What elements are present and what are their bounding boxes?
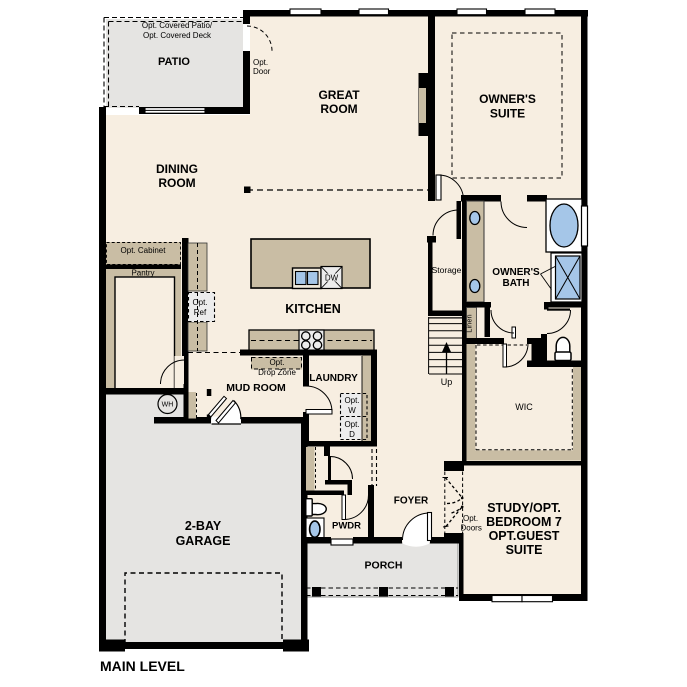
svg-text:GREAT: GREAT <box>318 88 360 102</box>
svg-text:Opt.: Opt. <box>269 358 284 367</box>
svg-text:Door: Door <box>253 67 271 76</box>
svg-text:PWDR: PWDR <box>332 521 361 532</box>
svg-text:MAIN LEVEL: MAIN LEVEL <box>100 658 185 674</box>
svg-text:DINING: DINING <box>156 162 198 176</box>
svg-text:Drop Zone: Drop Zone <box>258 368 296 377</box>
svg-text:ROOM: ROOM <box>158 176 195 190</box>
svg-text:Opt.: Opt. <box>463 514 478 523</box>
svg-text:OWNER'S: OWNER'S <box>479 92 536 106</box>
svg-text:2-BAY: 2-BAY <box>185 519 222 533</box>
svg-text:WH: WH <box>162 402 174 409</box>
svg-text:SUITE: SUITE <box>490 107 525 121</box>
svg-text:D: D <box>349 430 355 439</box>
svg-text:FOYER: FOYER <box>394 496 429 507</box>
svg-text:BATH: BATH <box>502 278 529 289</box>
svg-text:W: W <box>348 406 356 415</box>
svg-text:Opt.: Opt. <box>192 298 207 307</box>
svg-text:PATIO: PATIO <box>158 56 190 68</box>
svg-text:Linen: Linen <box>465 314 474 332</box>
svg-text:BEDROOM 7: BEDROOM 7 <box>486 515 562 529</box>
svg-text:OWNER'S: OWNER'S <box>492 267 540 278</box>
svg-text:MUD ROOM: MUD ROOM <box>226 382 286 394</box>
svg-text:ROOM: ROOM <box>320 102 357 116</box>
svg-text:SUITE: SUITE <box>506 543 543 557</box>
svg-text:Storage: Storage <box>432 265 462 275</box>
svg-text:Pantry: Pantry <box>131 269 154 278</box>
svg-text:Ref: Ref <box>194 308 207 317</box>
svg-text:Doors: Doors <box>461 524 482 533</box>
svg-text:STUDY/OPT.: STUDY/OPT. <box>487 501 561 515</box>
svg-text:KITCHEN: KITCHEN <box>285 302 341 316</box>
svg-text:Opt.: Opt. <box>344 396 359 405</box>
svg-text:Opt. Covered Patio/: Opt. Covered Patio/ <box>142 21 213 30</box>
svg-text:WIC: WIC <box>515 402 533 412</box>
svg-text:Up: Up <box>441 377 453 387</box>
svg-text:Opt.: Opt. <box>253 58 268 67</box>
svg-text:Opt. Covered Deck: Opt. Covered Deck <box>143 31 212 40</box>
svg-text:Opt. Cabinet: Opt. Cabinet <box>121 246 167 255</box>
svg-text:OPT.GUEST: OPT.GUEST <box>489 529 560 543</box>
svg-text:PORCH: PORCH <box>365 560 403 572</box>
svg-text:Opt.: Opt. <box>344 420 359 429</box>
svg-text:LAUNDRY: LAUNDRY <box>309 373 358 384</box>
svg-text:GARAGE: GARAGE <box>176 534 231 548</box>
svg-text:DW: DW <box>325 274 339 283</box>
